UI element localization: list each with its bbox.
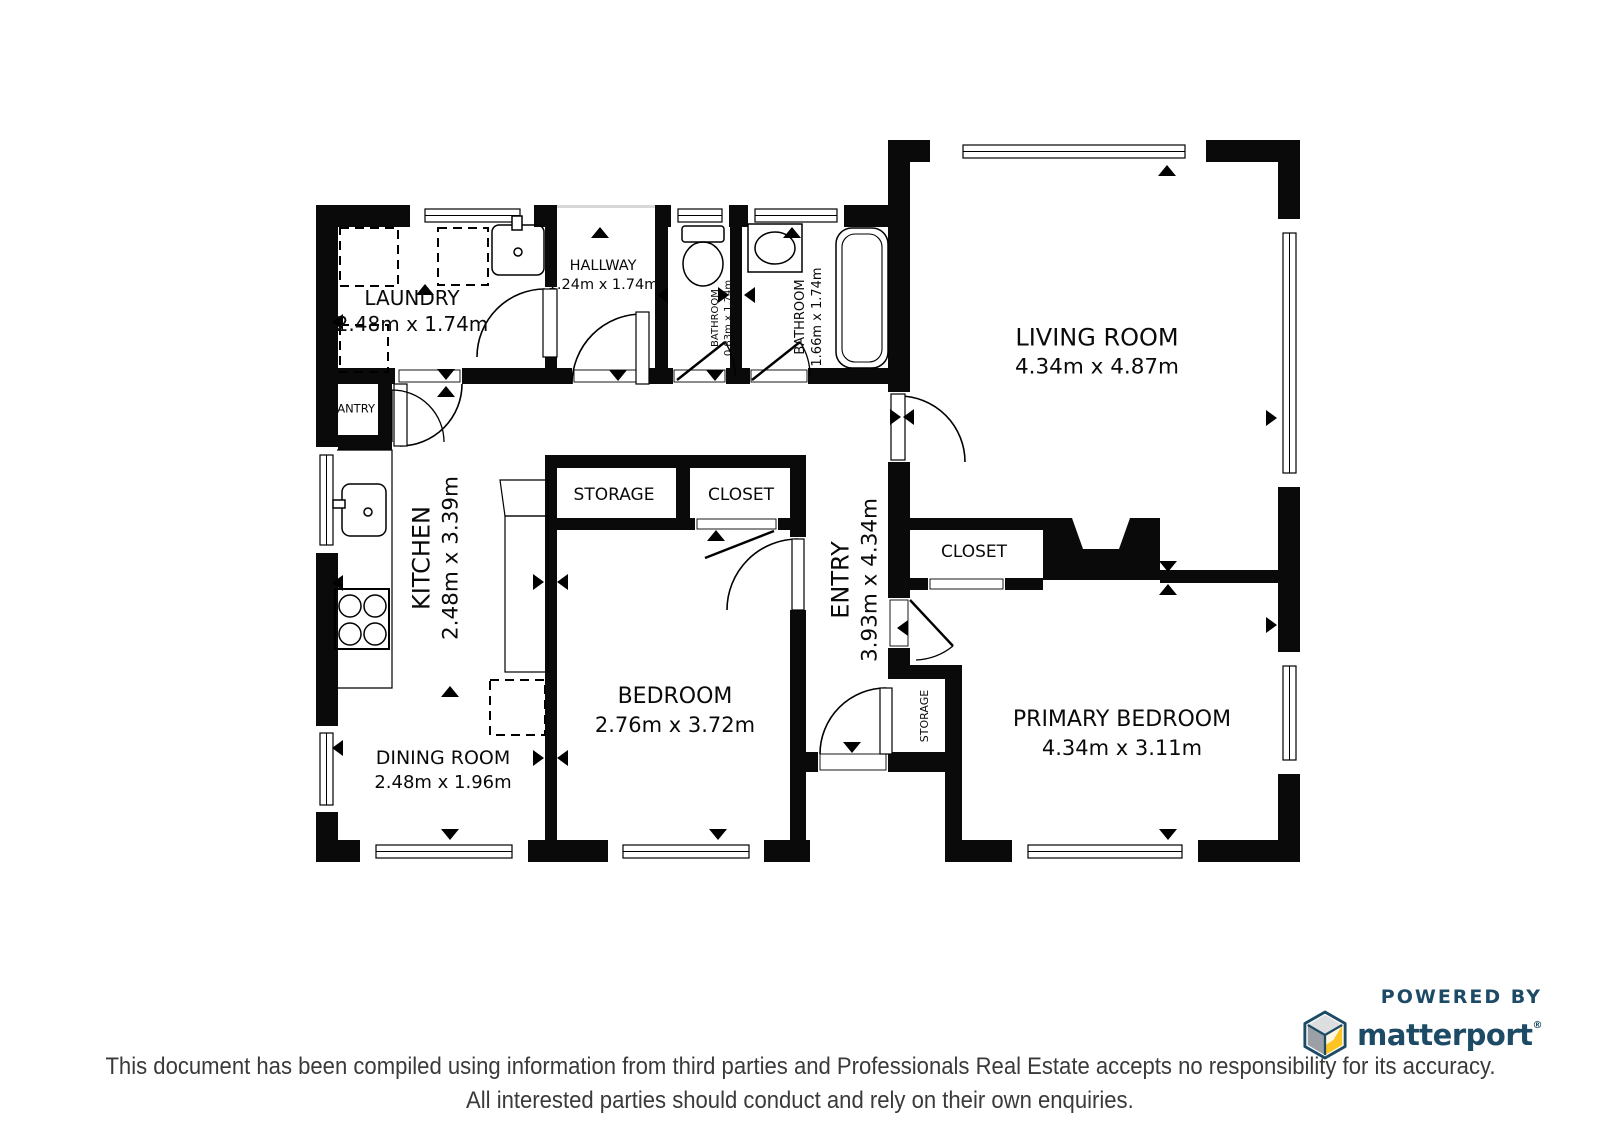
room-name: BEDROOM — [595, 683, 755, 712]
floorplan-document: LAUNDRY 2.48m x 1.74m HALLWAY 1.24m x 1.… — [0, 0, 1600, 1131]
room-dims: 1.24m x 1.74m — [548, 276, 659, 295]
room-dims: 3.93m x 4.34m — [857, 498, 885, 662]
room-name: PRIMARY BEDROOM — [1013, 706, 1231, 735]
room-label-hallway: HALLWAY 1.24m x 1.74m — [548, 257, 659, 295]
kitchen-sink-icon — [333, 484, 386, 536]
room-name: PANTRY — [331, 402, 375, 417]
room-name: CLOSET — [708, 484, 774, 506]
bedroom-door — [727, 539, 804, 610]
primary-bedroom-door — [910, 600, 953, 660]
room-dims: 2.76m x 3.72m — [595, 712, 755, 739]
stove-icon — [335, 589, 389, 649]
room-dims: 2.48m x 1.96m — [374, 771, 511, 794]
matterport-branding: POWERED BY matterport® — [1302, 986, 1542, 1060]
floorplan-drawing — [0, 0, 1600, 1131]
room-dims: 4.34m x 3.11m — [1013, 735, 1231, 762]
room-label-closet-primary: CLOSET — [941, 541, 1007, 563]
room-name: ENTRY — [825, 498, 856, 662]
room-label-bathroom-main: BATHROOM 1.66m x 1.74m — [793, 267, 827, 366]
room-dims: 1.66m x 1.74m — [810, 267, 827, 366]
living-room-door — [891, 394, 965, 462]
powered-by-text: POWERED BY — [1381, 986, 1542, 1008]
room-label-pantry: PANTRY — [331, 402, 375, 417]
room-label-bedroom: BEDROOM 2.76m x 3.72m — [595, 683, 755, 739]
room-dims: 0.83m x 1.74m — [722, 280, 735, 356]
dishwasher-icon — [490, 680, 545, 735]
registered-mark: ® — [1533, 1020, 1543, 1031]
room-label-dining-room: DINING ROOM 2.48m x 1.96m — [374, 746, 511, 794]
room-dims: 4.34m x 4.87m — [1015, 354, 1179, 382]
room-name: LAUNDRY — [336, 285, 489, 311]
room-label-primary-bedroom: PRIMARY BEDROOM 4.34m x 3.11m — [1013, 706, 1231, 762]
room-label-laundry: LAUNDRY 2.48m x 1.74m — [336, 285, 489, 337]
room-label-storage-hall: STORAGE — [574, 484, 655, 506]
room-name: KITCHEN — [406, 476, 437, 640]
logo-text: matterport — [1357, 1018, 1532, 1052]
room-dims: 2.48m x 3.39m — [438, 476, 466, 640]
room-dims: 2.48m x 1.74m — [336, 311, 489, 337]
room-label-kitchen: KITCHEN 2.48m x 3.39m — [406, 476, 465, 640]
dryer-icon — [438, 228, 488, 285]
room-name: HALLWAY — [548, 257, 659, 276]
disclaimer-text-1: This document has been compiled using in… — [105, 1053, 1495, 1081]
toilet-icon — [682, 226, 724, 286]
washer-icon — [340, 228, 398, 286]
room-label-bathroom-small: BATHROOM 0.83m x 1.74m — [709, 280, 735, 356]
disclaimer-text-2: All interested parties should conduct an… — [466, 1087, 1134, 1115]
room-label-closet-bedroom: CLOSET — [708, 484, 774, 506]
room-name: BATHROOM — [709, 280, 722, 356]
room-name: LIVING ROOM — [1015, 322, 1179, 353]
room-name: CLOSET — [941, 541, 1007, 563]
hallway-threshold — [557, 205, 655, 208]
room-name: BATHROOM — [793, 267, 810, 366]
room-name: DINING ROOM — [374, 746, 511, 771]
room-label-living-room: LIVING ROOM 4.34m x 4.87m — [1015, 322, 1179, 381]
room-label-entry: ENTRY 3.93m x 4.34m — [825, 498, 884, 662]
room-label-storage-entry: STORAGE — [918, 690, 932, 742]
laundry-door — [477, 289, 557, 357]
room-name: STORAGE — [574, 484, 655, 506]
disclaimer-line-1: This document has been compiled using in… — [0, 1053, 1600, 1081]
bathtub-icon — [836, 228, 888, 368]
laundry-sink-icon — [492, 216, 544, 275]
disclaimer-line-2: All interested parties should conduct an… — [0, 1087, 1600, 1115]
matterport-wordmark: matterport® — [1357, 1021, 1542, 1050]
room-name: STORAGE — [918, 690, 932, 742]
